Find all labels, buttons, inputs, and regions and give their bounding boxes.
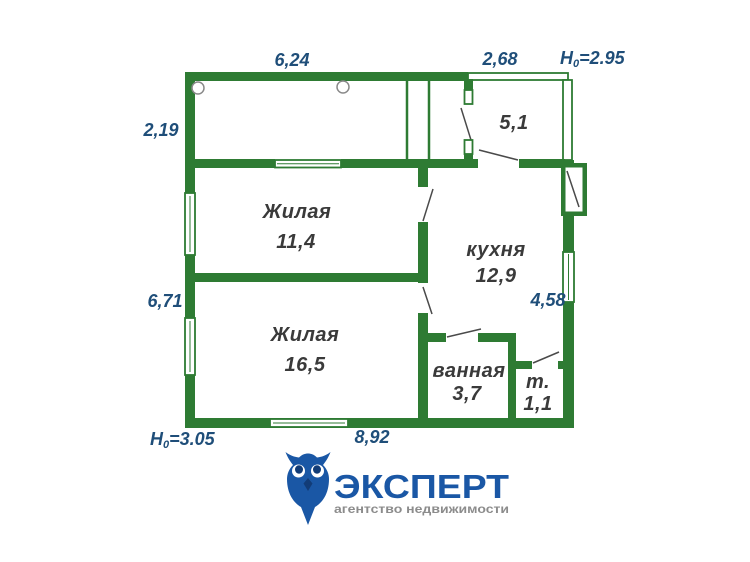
kitchen-label: кухня — [466, 239, 525, 261]
room2-area: 16,5 — [285, 354, 326, 376]
wall-veranda-bottom-right — [519, 159, 565, 168]
wall-veranda-hall-top — [464, 79, 473, 90]
glazed-wall-right-hall — [563, 80, 572, 160]
entrance-door-icon — [561, 163, 587, 216]
dim-height-bottom-prefix: H — [150, 429, 164, 449]
outer-wall-right-lower — [563, 302, 574, 418]
dim-bottom: 8,92 — [354, 427, 389, 447]
dim-top: 6,24 — [274, 50, 309, 70]
wall-bathroom-toilet — [508, 342, 516, 418]
dim-height-top: H0=2.95 — [560, 48, 626, 70]
dim-height-bottom-value: =3.05 — [169, 429, 216, 449]
wall-veranda-bottom-left — [193, 159, 275, 168]
wall-veranda-hall-bottom — [464, 154, 473, 159]
door-room1-leaf — [423, 189, 433, 221]
dim-left-upper: 2,19 — [142, 120, 178, 140]
door-veranda-hall-leaf — [461, 108, 471, 140]
dim-height-top-value: =2.95 — [579, 48, 626, 68]
dim-left-lower: 6,71 — [147, 291, 182, 311]
room1-area: 11,4 — [276, 231, 315, 253]
logo-title: ЭКСПЕРТ — [334, 468, 509, 505]
owl-icon — [286, 452, 331, 525]
toilet-label: т. — [526, 371, 550, 393]
logo-subtitle: агентство недвижимости — [334, 502, 509, 516]
kitchen-area: 12,9 — [476, 265, 517, 287]
glazed-wall-top-right — [468, 73, 568, 80]
door-bathroom-leaf — [447, 329, 481, 337]
door-jamb-hall-top — [465, 90, 473, 104]
dim-right: 4,58 — [529, 290, 565, 310]
dim-top-right: 2,68 — [481, 49, 517, 69]
agency-logo: ЭКСПЕРТ агентство недвижимости — [286, 452, 510, 525]
owl-pupil-left — [295, 465, 303, 473]
wall-veranda-bottom-mid — [341, 159, 478, 168]
vent-circle-icon-right — [337, 81, 349, 93]
vent-circle-icon-left — [192, 82, 204, 94]
wall-bathroom-top-left — [428, 333, 446, 342]
wall-room1-room2 — [193, 273, 418, 282]
door-jamb-hall-bottom — [465, 140, 473, 154]
wall-rooms-kitchen-1 — [418, 168, 428, 187]
floorplan-page: 6,24 2,68 H0=2.95 2,19 6,71 4,58 H0=3.05… — [0, 0, 750, 562]
floorplan-svg: 6,24 2,68 H0=2.95 2,19 6,71 4,58 H0=3.05… — [0, 0, 750, 562]
dim-height-bottom: H0=3.05 — [150, 429, 216, 451]
room2-label: Жилая — [270, 324, 340, 346]
door-hall-kitchen-leaf — [479, 150, 518, 160]
wall-bathroom-top-right — [478, 333, 516, 342]
outer-wall-top — [185, 72, 468, 81]
door-toilet-leaf — [533, 352, 559, 363]
bathroom-label: ванная — [433, 360, 506, 382]
room1-label: Жилая — [262, 201, 332, 223]
wall-toilet-top-right — [558, 361, 565, 369]
dim-height-top-prefix: H — [560, 48, 574, 68]
bathroom-area: 3,7 — [452, 383, 482, 405]
door-room2-leaf — [423, 287, 432, 314]
owl-pupil-right — [313, 465, 321, 473]
wall-rooms-kitchen-2 — [418, 222, 428, 283]
hall-area: 5,1 — [499, 112, 528, 134]
wall-toilet-top-left — [516, 361, 532, 369]
wall-rooms-kitchen-3 — [418, 313, 428, 418]
toilet-area: 1,1 — [523, 393, 552, 415]
